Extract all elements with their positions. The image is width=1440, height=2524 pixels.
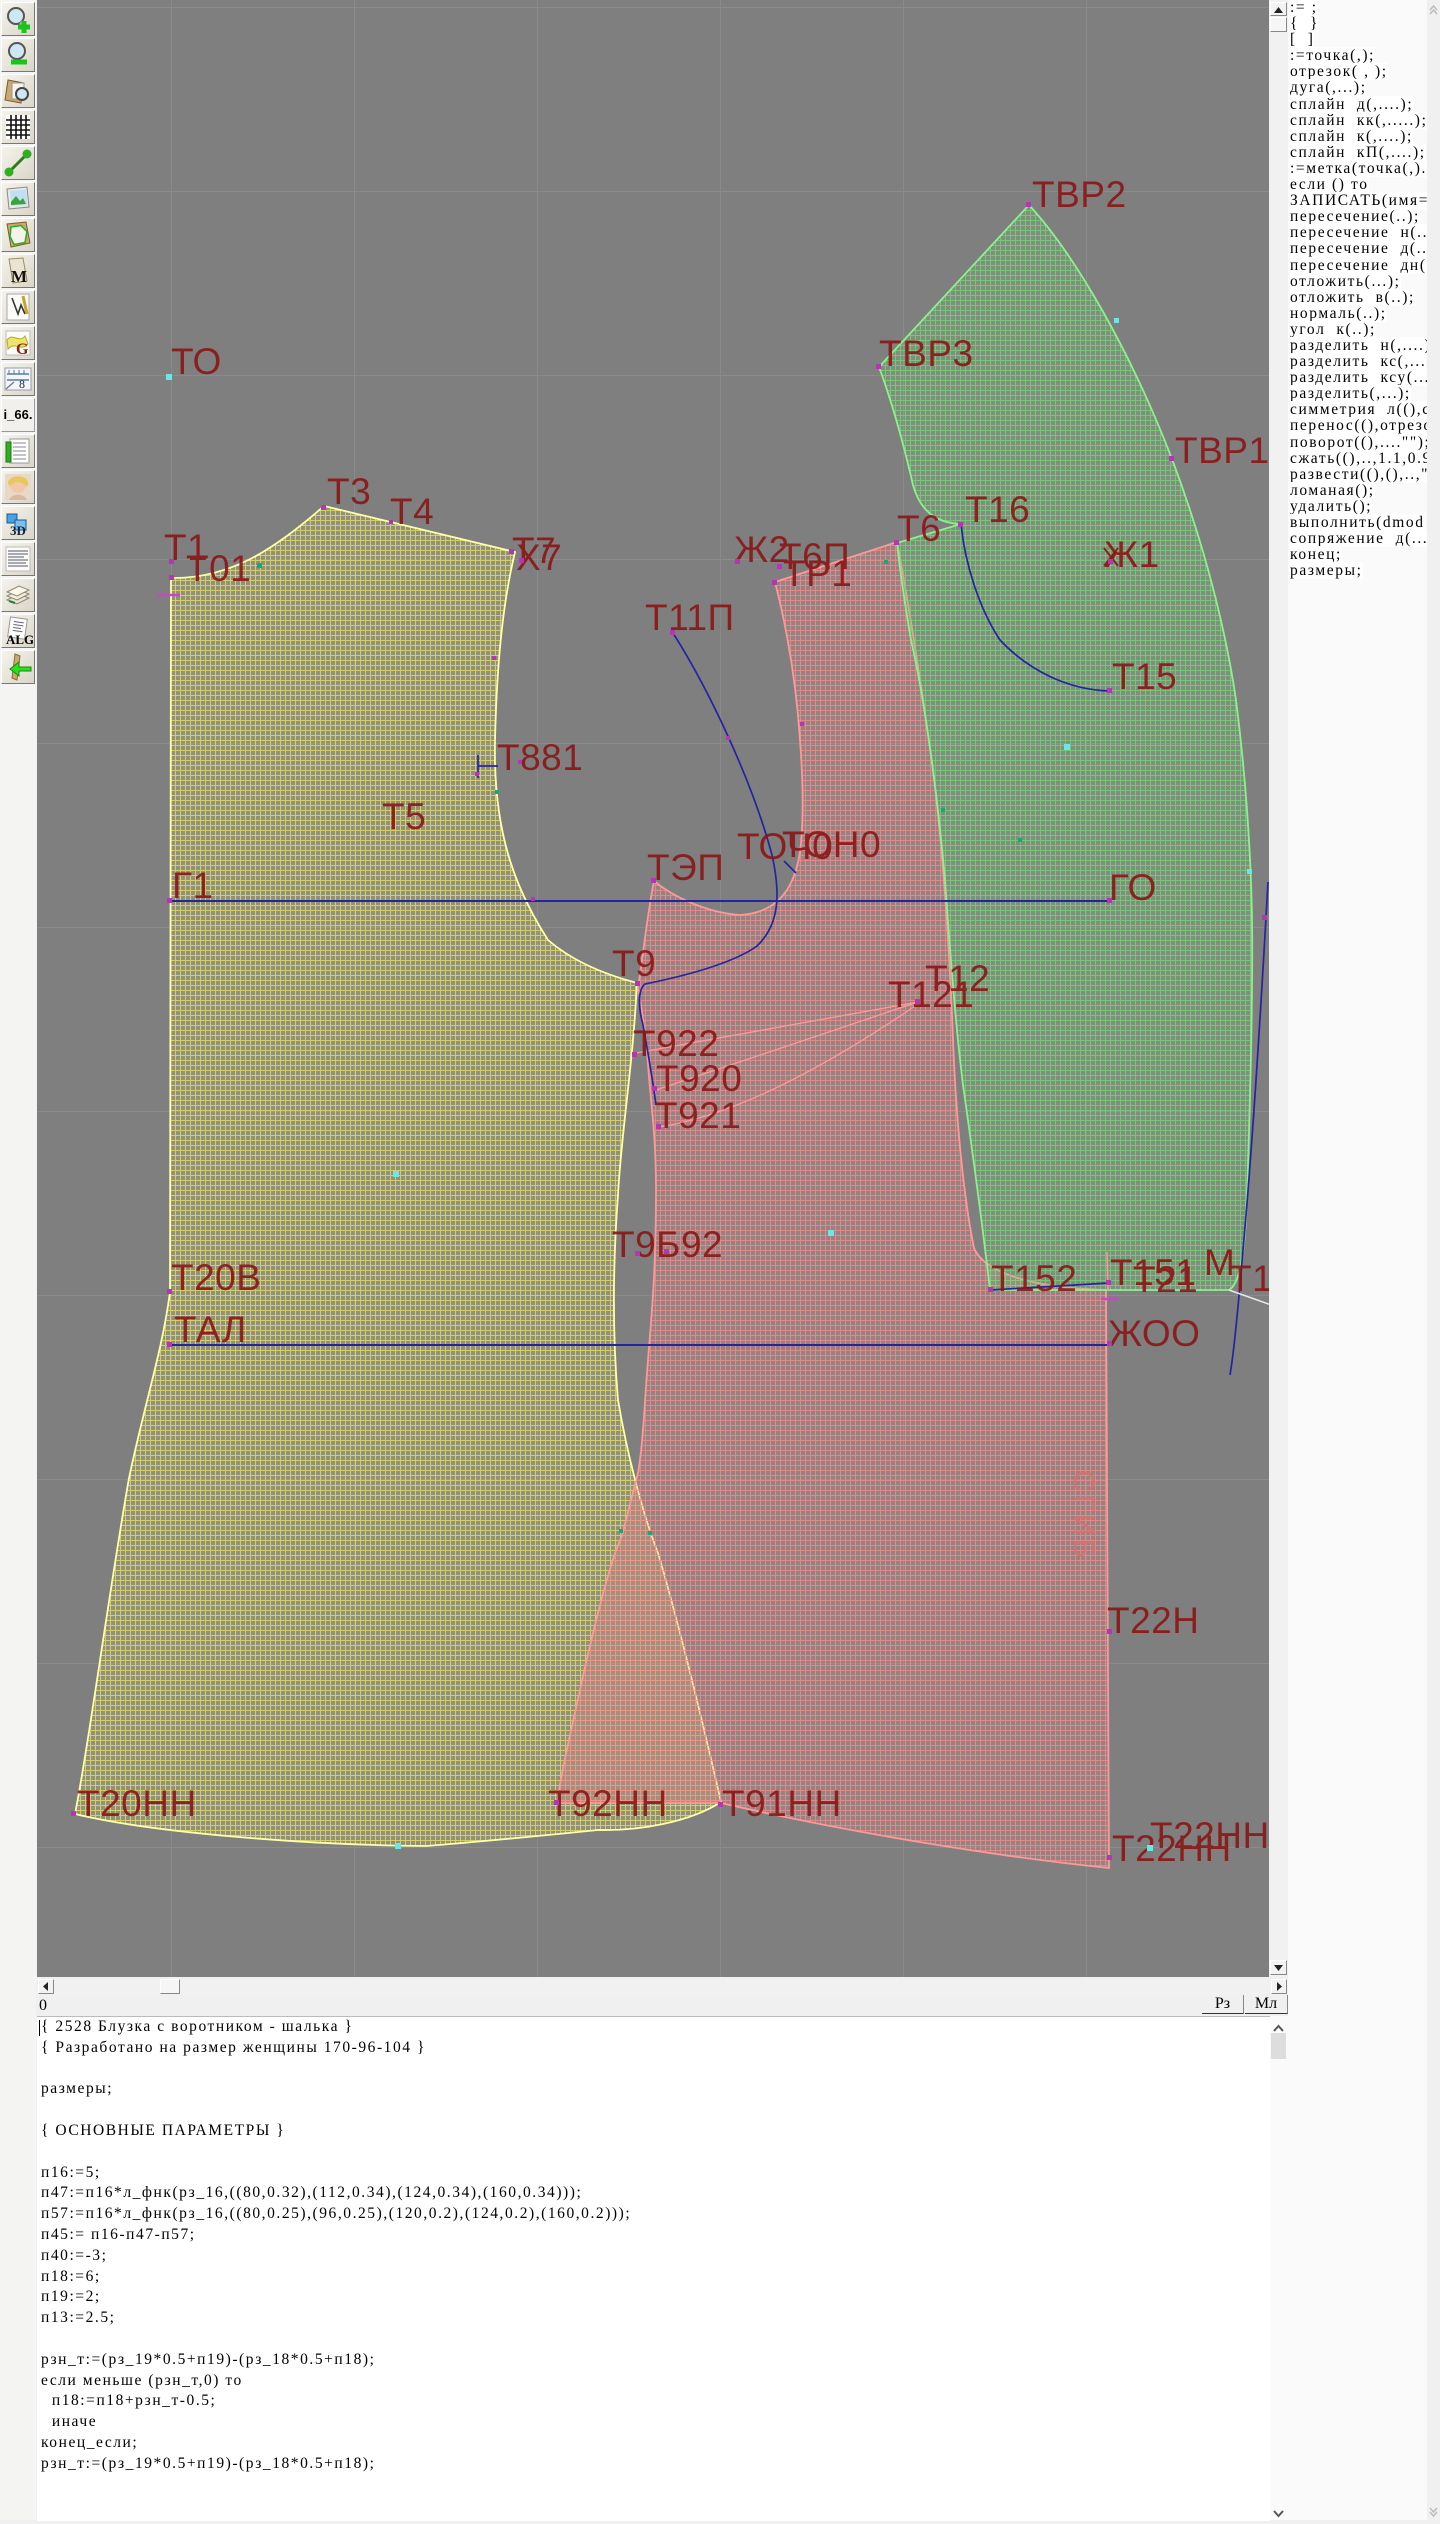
svg-text:G: G bbox=[16, 341, 29, 358]
svg-text:Т22НН: Т22НН bbox=[1150, 1815, 1269, 1856]
svg-text:Т5: Т5 bbox=[382, 796, 426, 837]
svg-text:ГО: ГО bbox=[1109, 867, 1157, 908]
svg-text:M: M bbox=[11, 267, 27, 286]
svg-text:Т01: Т01 bbox=[186, 548, 251, 589]
svg-text:Т921: Т921 bbox=[655, 1095, 741, 1136]
svg-text:Т920: Т920 bbox=[656, 1058, 742, 1099]
svg-text:Т152: Т152 bbox=[991, 1258, 1077, 1299]
svg-text:Г1: Г1 bbox=[172, 865, 214, 906]
svg-text:ТВР2: ТВР2 bbox=[1032, 174, 1127, 215]
svg-text:ТВР1: ТВР1 bbox=[1175, 430, 1269, 471]
svg-text:ТОН0: ТОН0 bbox=[782, 824, 881, 865]
svg-text:ТВР3: ТВР3 bbox=[879, 333, 974, 374]
svg-text:Т4: Т4 bbox=[390, 491, 434, 532]
svg-text:ALG: ALG bbox=[6, 632, 33, 646]
svg-text:Т121: Т121 bbox=[888, 974, 974, 1015]
svg-text:Х7: Х7 bbox=[516, 537, 562, 578]
svg-text:3D: 3D bbox=[10, 523, 26, 538]
svg-text:Т22Н: Т22Н bbox=[1107, 1600, 1199, 1641]
svg-text:Т9Б92: Т9Б92 bbox=[612, 1224, 723, 1265]
svg-text:Т9: Т9 bbox=[612, 943, 656, 984]
svg-text:Т91НН: Т91НН bbox=[722, 1783, 842, 1824]
svg-text:Т16: Т16 bbox=[965, 489, 1030, 530]
svg-text:ЖОО: ЖОО bbox=[1108, 1313, 1200, 1354]
svg-text:Т11П: Т11П bbox=[645, 597, 735, 638]
svg-text:Т6: Т6 bbox=[897, 508, 941, 549]
svg-text:ТАЛ: ТАЛ bbox=[174, 1309, 247, 1350]
svg-text:ТЭП: ТЭП bbox=[647, 847, 724, 888]
svg-text:ТР1: ТР1 bbox=[783, 553, 852, 594]
svg-text:8: 8 bbox=[19, 377, 25, 391]
svg-text:Т15: Т15 bbox=[1112, 656, 1177, 697]
svg-text:Т92НН: Т92НН bbox=[548, 1783, 668, 1824]
svg-text:Т1: Т1 bbox=[1229, 1258, 1269, 1299]
svg-text:Т881: Т881 bbox=[497, 737, 583, 778]
svg-text:ТО: ТО bbox=[171, 341, 222, 382]
svg-text:Т21: Т21 bbox=[1133, 1259, 1198, 1300]
svg-text:Т20НН: Т20НН bbox=[77, 1783, 197, 1824]
svg-text:Т20В: Т20В bbox=[171, 1257, 261, 1298]
svg-text:Т3: Т3 bbox=[327, 471, 371, 512]
svg-text:СГИБ: СГИБ bbox=[1067, 1470, 1100, 1561]
